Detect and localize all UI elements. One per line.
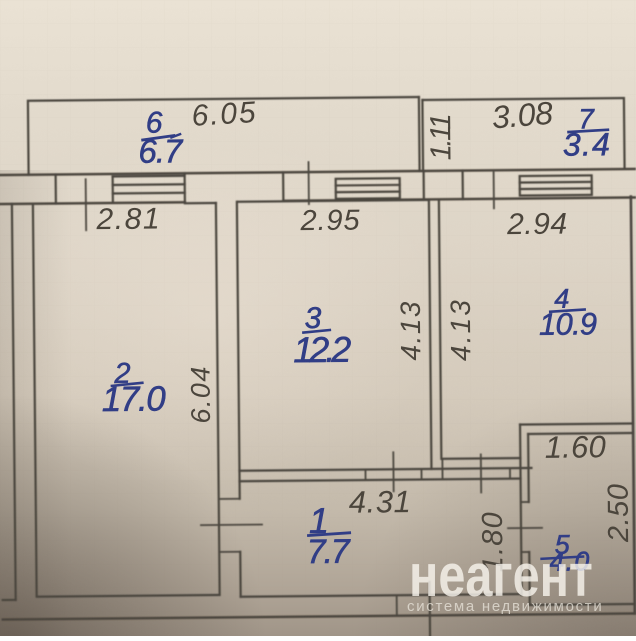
svg-text:система недвижимости: система недвижимости	[407, 598, 603, 615]
